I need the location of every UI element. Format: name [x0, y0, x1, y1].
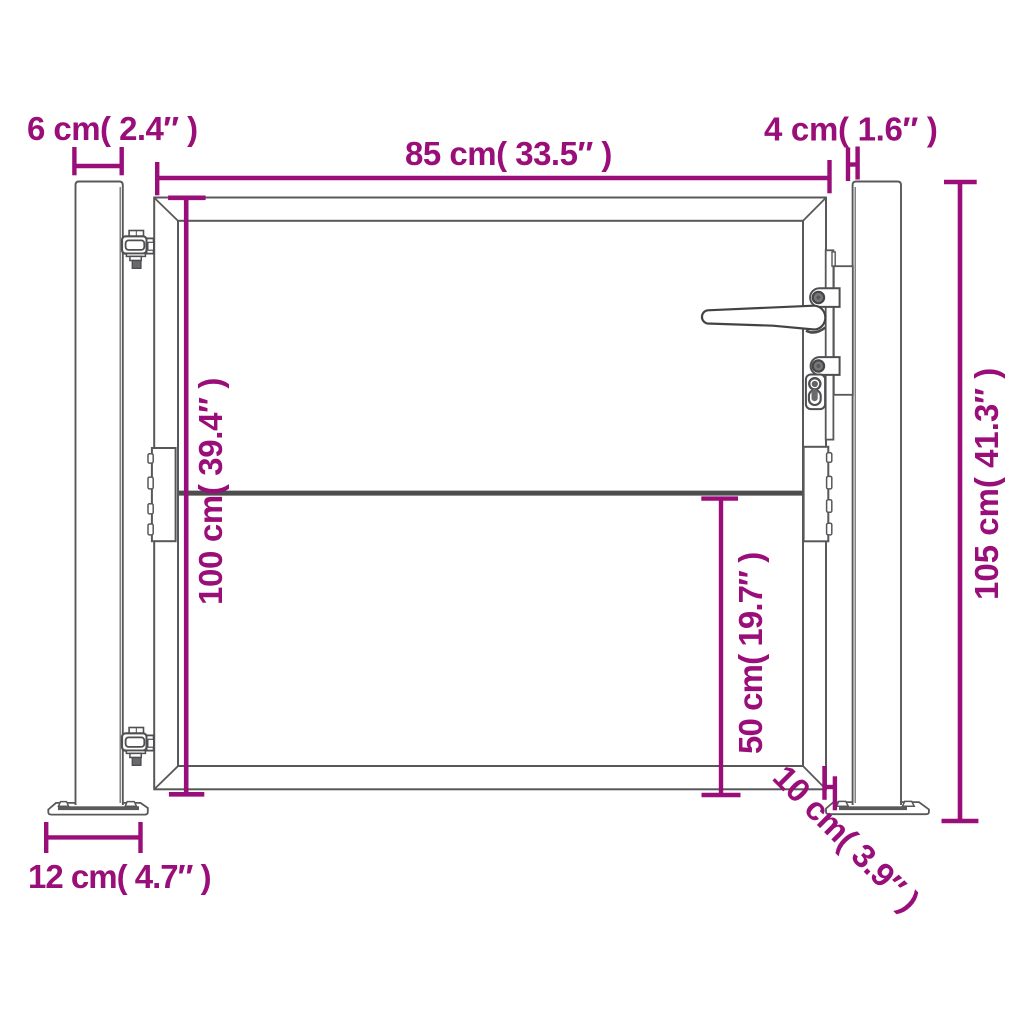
svg-text:85 cm( 33.5″ ): 85 cm( 33.5″ ): [405, 135, 612, 172]
svg-text:6 cm( 2.4″ ): 6 cm( 2.4″ ): [27, 110, 198, 147]
svg-text:12 cm( 4.7″ ): 12 cm( 4.7″ ): [28, 858, 211, 895]
svg-text:4 cm( 1.6″ ): 4 cm( 1.6″ ): [764, 111, 938, 148]
svg-text:100 cm( 39.4″ ): 100 cm( 39.4″ ): [192, 378, 229, 605]
svg-text:50 cm( 19.7″ ): 50 cm( 19.7″ ): [732, 553, 769, 754]
svg-text:105 cm( 41.3″ ): 105 cm( 41.3″ ): [968, 368, 1005, 600]
